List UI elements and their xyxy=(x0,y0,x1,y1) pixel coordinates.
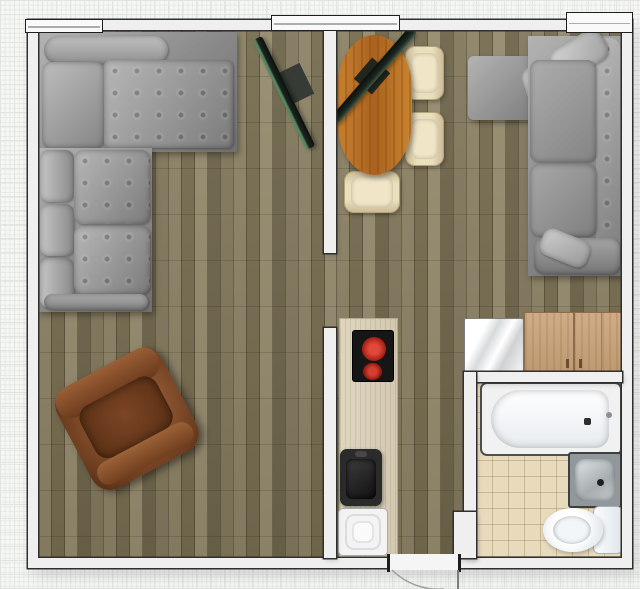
bathroom-wall-left-step xyxy=(454,512,476,558)
door-jamb-right xyxy=(458,554,461,572)
interior-wall-living-upper xyxy=(324,30,336,253)
window-top-right-corner[interactable] xyxy=(566,12,633,33)
window-pane-line xyxy=(28,26,100,28)
floor-plan xyxy=(0,0,640,589)
window-pane-line xyxy=(274,23,397,25)
window-top-center[interactable] xyxy=(271,15,400,31)
door-jamb-left xyxy=(387,554,390,572)
entrance-door-opening[interactable] xyxy=(390,554,458,570)
window-pane-line xyxy=(569,23,630,25)
interior-wall-living-lower xyxy=(324,328,336,558)
window-top-left[interactable] xyxy=(25,19,103,33)
bathroom-wall-top xyxy=(464,372,622,382)
